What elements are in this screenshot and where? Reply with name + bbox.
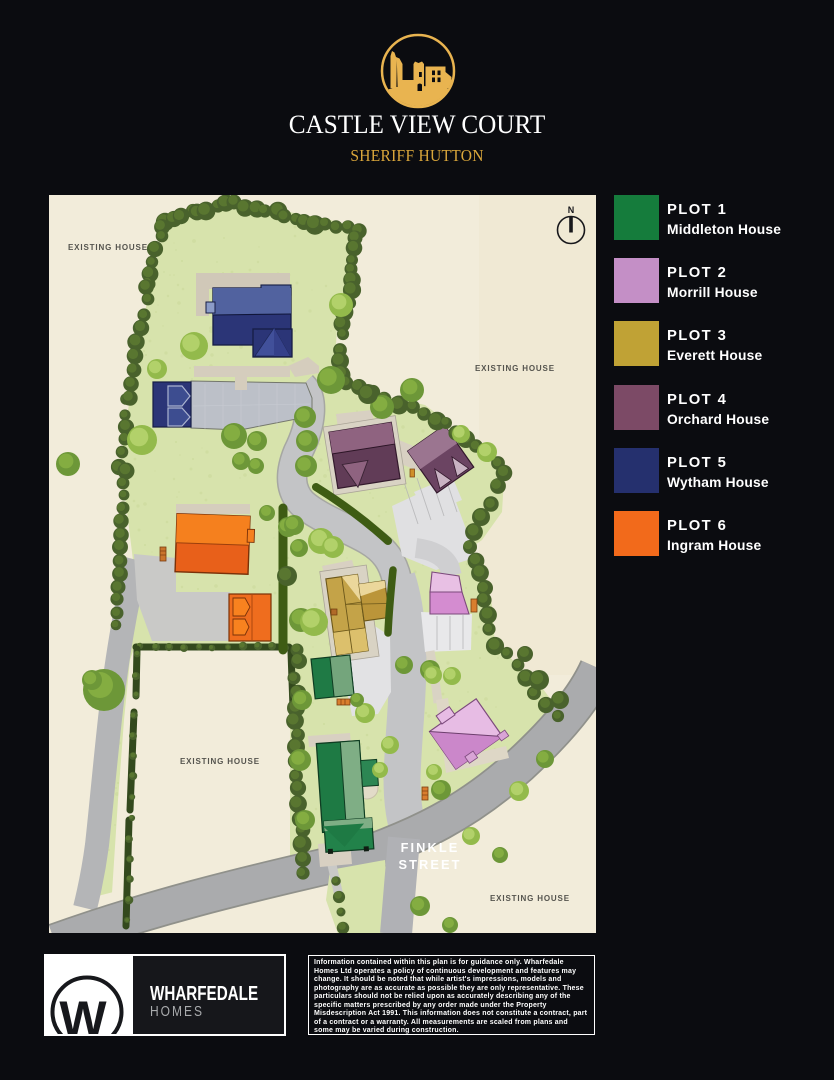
svg-text:W: W [59,991,107,1034]
svg-text:EXISTING HOUSE: EXISTING HOUSE [68,243,148,252]
svg-text:N: N [568,205,575,215]
svg-text:STREET: STREET [398,857,461,872]
svg-text:EXISTING HOUSE: EXISTING HOUSE [490,894,570,903]
svg-text:EXISTING HOUSE: EXISTING HOUSE [180,757,260,766]
svg-text:EXISTING HOUSE: EXISTING HOUSE [475,364,555,373]
svg-text:FINKLE: FINKLE [401,840,460,855]
